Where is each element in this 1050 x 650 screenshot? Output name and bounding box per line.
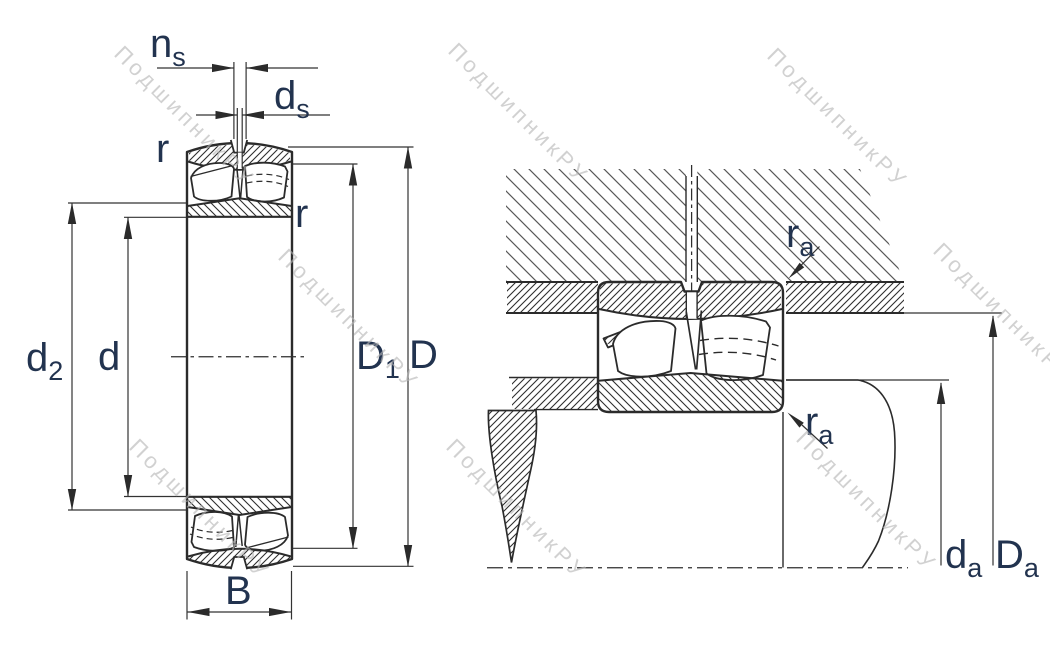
watermark-text: ПодшипникРУ <box>443 38 594 189</box>
label-r-side: r <box>295 192 308 236</box>
dim-Da <box>989 315 997 566</box>
right-view-mounted-section: ra ra da Da <box>487 165 1040 583</box>
roller-right-mounted <box>701 316 770 380</box>
label-ds: ds <box>274 74 310 124</box>
label-d: d <box>98 335 120 379</box>
shaft-shoulder-left <box>512 379 598 410</box>
bearing-dimension-drawing: ns ds r r d2 d D1 D B <box>0 0 1050 650</box>
label-Da: Da <box>995 533 1040 583</box>
label-ns: ns <box>150 22 186 72</box>
label-r-top: r <box>156 127 169 171</box>
housing-shoulder-left <box>507 283 598 313</box>
dim-da <box>937 382 945 566</box>
housing-shoulder-right <box>786 283 904 313</box>
watermark-text: ПодшипникРУ <box>791 426 942 577</box>
housing-hatch <box>506 169 904 282</box>
label-da: da <box>945 533 983 583</box>
technical-drawing-page: ns ds r r d2 d D1 D B <box>0 0 1050 650</box>
lubrication-hole-mounted <box>686 292 697 319</box>
label-d2: d2 <box>26 336 63 386</box>
roller-left-mounted <box>613 321 676 377</box>
label-B: B <box>225 569 252 613</box>
watermark-text: ПодшипникРУ <box>273 244 424 395</box>
